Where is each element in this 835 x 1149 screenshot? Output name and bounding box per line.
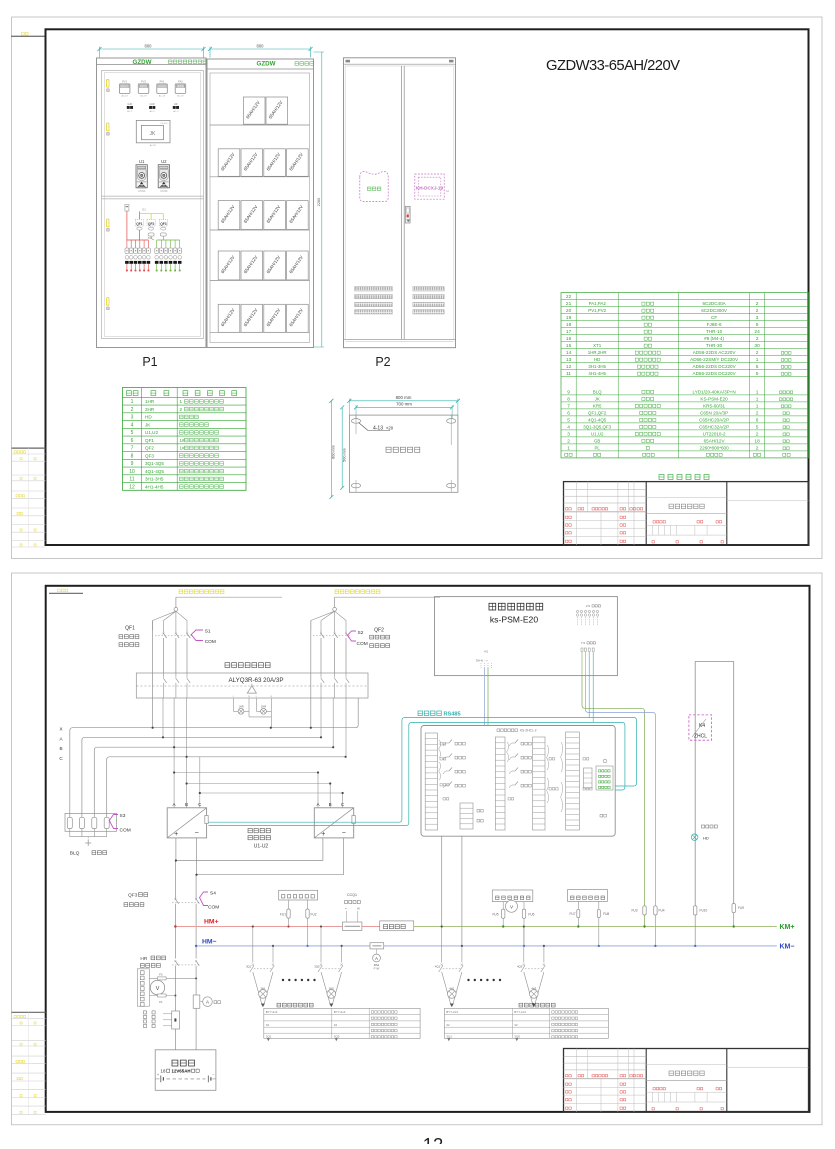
svg-text:PV2: PV2 [141,80,146,84]
svg-text:800: 800 [145,44,153,49]
svg-text:LYD1/20-40KA/3P+N: LYD1/20-40KA/3P+N [692,390,735,395]
svg-text:+: + [157,1073,159,1077]
svg-text:QF3: QF3 [160,222,167,226]
svg-text:18: 18 [754,439,760,445]
svg-text:AD56-22DS DC220V: AD56-22DS DC220V [693,364,737,369]
svg-text:1: 1 [756,397,759,403]
svg-text:UT220: UT220 [138,190,146,193]
svg-text:AD56-22DS DC220V: AD56-22DS DC220V [693,371,737,376]
svg-text:ALYQ3R-63 20A/3P: ALYQ3R-63 20A/3P [229,677,284,684]
svg-text:AD56-22DS AC220V: AD56-22DS AC220V [693,350,737,355]
svg-text:3H1-3H5: 3H1-3H5 [145,477,164,482]
svg-text:11: 11 [129,477,134,483]
svg-text:KM−: KM− [780,944,795,951]
svg-text:GZDW33-65AH/220V: GZDW33-65AH/220V [546,58,680,74]
svg-text:ZHCL: ZHCL [694,734,707,740]
svg-text:HD: HD [145,415,152,420]
svg-text:65AH/12V: 65AH/12V [704,439,726,444]
svg-text:C65N 20A/3P: C65N 20A/3P [700,411,728,416]
svg-text:3Q1: 3Q1 [246,964,252,968]
svg-text:3Q1-3Q5: 3Q1-3Q5 [145,461,164,466]
svg-text:2260: 2260 [317,198,321,206]
svg-text:2: 2 [756,336,759,342]
svg-text:W: W [357,907,360,911]
svg-text:4-13: 4-13 [373,425,383,431]
svg-text:FU9: FU9 [738,906,744,910]
svg-text:COM: COM [357,641,368,647]
svg-text:S4: S4 [210,890,216,896]
svg-text:32: 32 [446,1023,450,1027]
svg-text:4Q1: 4Q1 [435,964,441,968]
svg-text:3Q1: 3Q1 [266,1035,272,1039]
svg-text:2: 2 [756,432,759,438]
svg-text:4: 4 [567,425,570,431]
svg-text:UT22010-2: UT22010-2 [703,432,726,437]
svg-text:PA2: PA2 [374,963,380,967]
svg-text:XT1: XT1 [593,343,602,348]
svg-text:F1: F1 [159,1000,163,1004]
svg-text:B: B [59,746,62,751]
svg-text:30: 30 [754,343,760,349]
svg-text:1: 1 [131,399,134,405]
svg-text:2: 2 [131,407,134,413]
svg-text:7: 7 [131,446,134,452]
svg-text:HD: HD [594,357,600,362]
svg-text:8: 8 [567,397,570,403]
svg-text:ks-PSM-E20: ks-PSM-E20 [490,615,538,625]
svg-text:QF1,QF2: QF1,QF2 [588,411,607,416]
svg-text:FJ6E-6: FJ6E-6 [707,322,722,327]
svg-text:JK: JK [145,422,151,427]
svg-text:C65HC20A/2P: C65HC20A/2P [699,418,729,423]
svg-text:S1: S1 [205,628,211,634]
svg-text:19: 19 [566,315,572,321]
svg-text:2: 2 [756,308,759,314]
svg-text:6C2DC300V: 6C2DC300V [701,308,728,313]
svg-text:9: 9 [131,461,134,467]
svg-text:GZDW: GZDW [133,59,152,66]
svg-text:4: 4 [131,422,134,428]
svg-text:16: 16 [566,336,572,342]
svg-text:PV1: PV1 [122,80,127,84]
svg-text:C65HC32A/2P: C65HC32A/2P [699,425,729,430]
svg-text:3Q5: 3Q5 [314,964,320,968]
svg-text:UT220: UT220 [160,190,168,193]
svg-text:A: A [375,956,378,961]
svg-text:FU8: FU8 [603,912,609,916]
svg-text:HM−: HM− [202,939,217,946]
svg-text:7.5: 7.5 [581,641,586,645]
svg-text:2: 2 [756,350,759,356]
svg-text:COM: COM [120,827,131,833]
svg-text:= .: = . [345,907,349,911]
svg-text:32: 32 [266,1023,270,1027]
svg-text:5: 5 [756,425,759,431]
svg-text:3Q1-3Q5,QF3: 3Q1-3Q5,QF3 [583,425,611,430]
svg-text:10: 10 [129,469,135,475]
svg-text:#8 (M4-4): #8 (M4-4) [704,336,724,341]
svg-text:6C2DC40A: 6C2DC40A [702,301,726,306]
svg-text:U1,U2: U1,U2 [145,430,158,435]
svg-text:U1-U2: U1-U2 [254,844,269,850]
svg-text:5: 5 [756,322,759,328]
svg-text:1#: 1# [180,446,186,451]
svg-text:22: 22 [566,294,572,300]
svg-text:700 mm: 700 mm [396,402,412,407]
svg-text:1HR: 1HR [127,102,132,106]
svg-text:V: V [156,986,160,992]
svg-text:HM+: HM+ [204,919,219,926]
svg-text:−: − [213,1073,215,1077]
svg-text:QF3: QF3 [128,893,138,899]
svg-text:5: 5 [567,418,570,424]
svg-text:11: 11 [566,371,571,377]
svg-text:AD56-22SM/Y DC220V: AD56-22SM/Y DC220V [690,357,739,362]
svg-text:2.5: 2.5 [586,604,591,608]
svg-text:K4: K4 [699,723,705,729]
svg-text:BYY-2x4: BYY-2x4 [514,1010,526,1014]
svg-text:KR5-60/31: KR5-60/31 [703,404,725,409]
svg-text:600 mm: 600 mm [332,445,336,459]
svg-text:1#: 1# [180,438,186,443]
svg-text:2HR: 2HR [145,407,155,412]
svg-text:BLQ: BLQ [70,851,80,857]
svg-text:FU3: FU3 [631,909,637,913]
svg-text:18: 18 [566,322,572,328]
svg-text:AC-2: AC-2 [127,110,133,113]
svg-text:4Q5: 4Q5 [517,964,523,968]
svg-text:DH 4L − +: DH 4L − + [476,659,488,663]
svg-text:PL: PL [595,446,601,451]
svg-text:HR: HR [174,102,178,106]
svg-text:6: 6 [131,438,134,444]
svg-text:13: 13 [566,357,572,363]
svg-text:4Q1-4Q5: 4Q1-4Q5 [145,469,164,474]
svg-text:1: 1 [756,357,759,363]
svg-text:AC-2: AC-2 [150,110,156,113]
svg-text:PV1,PV2: PV1,PV2 [588,308,606,313]
svg-text:9: 9 [567,390,570,396]
svg-text:2: 2 [756,411,759,417]
svg-text:S3: S3 [120,813,126,819]
svg-text:AC-19: AC-19 [177,95,184,98]
svg-text:FU5: FU5 [492,913,498,917]
svg-text:−: − [342,830,346,837]
svg-text:24: 24 [754,329,760,335]
svg-text:U1: U1 [139,159,145,164]
svg-text:JK: JK [595,397,600,402]
svg-text:QF2: QF2 [374,628,384,634]
svg-text:3Q1: 3Q1 [446,1035,452,1039]
svg-text:BYY-2x4: BYY-2x4 [266,1010,278,1014]
svg-text:KM+: KM+ [780,924,795,931]
svg-text:3H1-3H5: 3H1-3H5 [588,364,606,369]
svg-text:2: 2 [756,446,759,452]
svg-text:BLQ: BLQ [593,390,602,395]
svg-text:U2: U2 [161,159,167,164]
svg-text:1HR: 1HR [145,399,155,404]
svg-text:KS-PSM-E20: KS-PSM-E20 [700,397,728,402]
svg-text:4H1-4H5: 4H1-4H5 [145,484,164,489]
svg-text:FU6: FU6 [528,913,534,917]
svg-text:3: 3 [756,315,759,321]
svg-text:S2: S2 [358,630,364,636]
svg-text:×20: ×20 [386,425,394,430]
svg-text:HR: HR [140,956,147,962]
svg-text:+: + [174,831,178,838]
svg-text:1: 1 [756,404,759,410]
svg-text:14: 14 [566,350,572,356]
svg-text:G1: G1 [142,208,146,212]
svg-text:6: 6 [756,418,759,424]
svg-text:1HR: 1HR [238,705,243,709]
svg-text:PA1: PA1 [160,80,165,84]
svg-text:AC-19: AC-19 [121,95,128,98]
svg-text:BYY-2x4: BYY-2x4 [446,1010,458,1014]
svg-text:HD: HD [703,836,709,841]
svg-text:A: A [206,1000,209,1005]
svg-text:1HR,2HR: 1HR,2HR [588,350,607,355]
svg-text:FU2: FU2 [311,913,317,917]
svg-text:2HR: 2HR [261,705,266,709]
svg-text:4.5: 4.5 [484,650,488,654]
svg-text:QF1: QF1 [136,222,143,226]
svg-text:F2: F2 [159,972,163,976]
svg-text:QF2: QF2 [145,446,154,451]
svg-text:COM: COM [208,904,219,910]
svg-text:KS-ZHCL-2: KS-ZHCL-2 [520,729,537,733]
svg-text:32: 32 [334,1023,338,1027]
svg-text:2: 2 [567,439,570,445]
svg-text:FU4: FU4 [659,909,665,913]
svg-text:FU10: FU10 [700,909,708,913]
svg-text:800: 800 [257,44,265,49]
svg-text:QF2: QF2 [148,222,155,226]
svg-text:FYW: FYW [374,966,380,970]
svg-text:21: 21 [566,301,572,307]
svg-text:AC-19: AC-19 [159,95,166,98]
svg-text:QF3: QF3 [145,453,154,458]
svg-text:15: 15 [566,343,572,349]
svg-text:20: 20 [566,308,572,314]
svg-text:B: B [185,802,188,807]
svg-text:U1,U2: U1,U2 [591,432,604,437]
svg-text:GB: GB [594,439,600,444]
svg-text:5: 5 [756,364,759,370]
svg-text:2HR: 2HR [149,102,154,106]
svg-text:12: 12 [129,484,135,490]
svg-text:CF: CF [711,315,717,320]
svg-text:17: 17 [566,329,572,335]
svg-text:2260*800*600: 2260*800*600 [700,446,730,451]
svg-text:6: 6 [567,411,570,417]
svg-text:32: 32 [514,1023,518,1027]
svg-text:3Q5: 3Q5 [514,1035,520,1039]
svg-text:JK: JK [149,131,156,137]
svg-text:12: 12 [423,1134,444,1144]
svg-text:12: 12 [566,364,572,370]
svg-text:4Q1-4Q5: 4Q1-4Q5 [588,418,607,423]
svg-text:1: 1 [756,390,759,396]
svg-text:2: 2 [756,301,759,307]
svg-text:5: 5 [756,371,759,377]
svg-text:P2: P2 [375,355,390,369]
svg-text:3: 3 [567,432,570,438]
svg-text:KH-DCXJ-19: KH-DCXJ-19 [416,186,444,191]
svg-text:KR5: KR5 [593,404,602,409]
svg-text:RS485: RS485 [444,712,461,718]
svg-text:PA1,PA2: PA1,PA2 [589,301,607,306]
svg-text:1: 1 [180,399,183,404]
svg-text:12V65AH: 12V65AH [172,1068,191,1073]
svg-text:THR-30: THR-30 [706,343,723,348]
svg-text:AC-20: AC-20 [150,144,157,147]
svg-text:−: − [195,830,199,837]
svg-text:THR-10: THR-10 [706,329,723,334]
svg-text:2: 2 [180,407,183,412]
svg-text:BYY-2x4: BYY-2x4 [334,1010,346,1014]
svg-text:GZDW: GZDW [257,61,276,68]
svg-text:PA2: PA2 [178,80,183,84]
svg-text:FU1: FU1 [280,913,286,917]
svg-text:3Q5: 3Q5 [334,1035,340,1039]
svg-text:CCQ1: CCQ1 [347,893,357,897]
svg-text:AC-2: AC-2 [173,110,179,113]
svg-text:5: 5 [131,430,134,436]
svg-text:3: 3 [131,415,134,421]
svg-text:QF1: QF1 [125,626,135,632]
svg-text:8: 8 [131,453,134,459]
svg-text:800 mm: 800 mm [396,395,412,400]
svg-text:B: B [329,802,332,807]
svg-text:AC-19: AC-19 [140,95,147,98]
svg-text:+: + [321,831,325,838]
svg-text:1: 1 [567,446,570,452]
svg-text:18: 18 [161,1068,166,1073]
svg-text:4H1-4H5: 4H1-4H5 [588,371,606,376]
svg-text:X: X [59,727,62,732]
svg-text:500 mm: 500 mm [342,448,346,462]
svg-text:COM: COM [205,639,216,645]
svg-text:QF1: QF1 [145,438,154,443]
svg-text:KS-E20: KS-E20 [161,123,169,125]
svg-text:FU7: FU7 [569,912,575,916]
svg-text:P1: P1 [142,355,157,369]
svg-text:7: 7 [567,404,570,410]
